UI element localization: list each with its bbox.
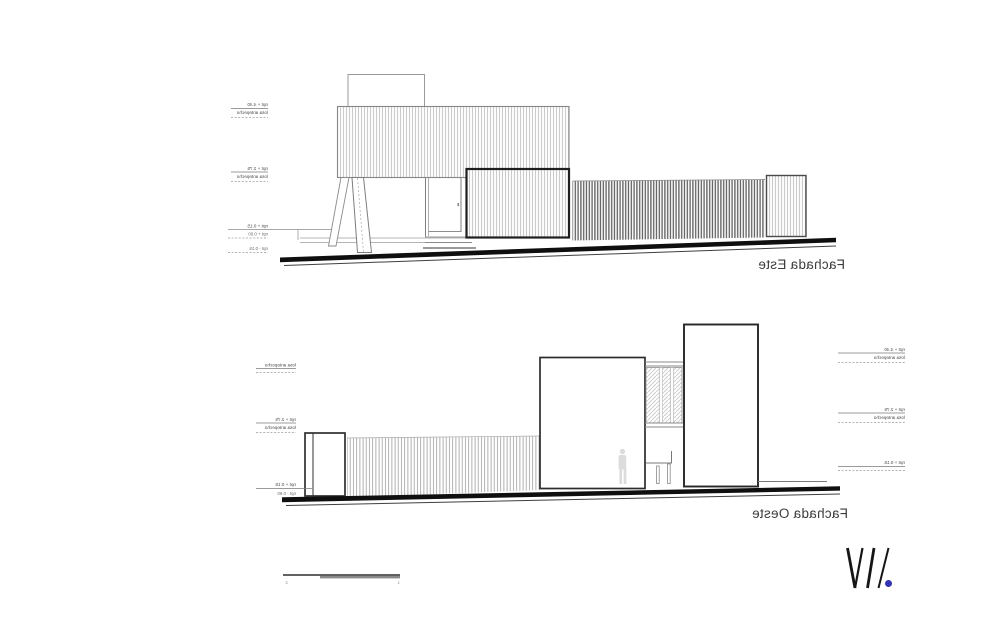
stair-post — [668, 464, 671, 484]
middle-bay — [645, 362, 684, 484]
upper-volume — [338, 107, 570, 178]
stair-post — [657, 466, 660, 484]
scale-bar: 2 1 — [283, 575, 400, 585]
scale-bar-left-number: 2 — [285, 580, 288, 585]
slanted-column — [352, 178, 372, 253]
level-annotation: losa antepecho — [236, 110, 268, 115]
elevation-linework: npt + 4.40 losa antepecho npt + 2.75 los… — [0, 0, 986, 637]
level-annotation: npt - 0.15 — [249, 246, 268, 251]
logo-dot — [885, 580, 892, 587]
stair-outline — [646, 451, 672, 463]
west-right-annotations: npt + 4.40 losa antepecho npt + 2.75 los… — [838, 347, 905, 471]
tower-volume — [684, 325, 758, 487]
front-panel — [467, 169, 570, 238]
level-annotation: npt + 0.15 — [275, 482, 296, 487]
west-left-annotations: losa antepecho npt + 2.75 losa antepecho… — [256, 363, 312, 497]
glazing-panels — [646, 368, 682, 424]
level-annotation: npt + 0.15 — [247, 224, 268, 229]
level-annotation: losa antepecho — [873, 415, 905, 420]
west-elevation-title: Fachada Oeste — [752, 506, 848, 521]
level-annotation: losa antepecho — [264, 425, 296, 430]
penthouse-outline — [348, 75, 425, 107]
scale-bar-segment — [320, 576, 400, 579]
main-volume — [540, 358, 645, 489]
door-handle — [458, 203, 460, 206]
level-annotation: losa antepecho — [236, 174, 268, 179]
east-elevation: npt + 4.40 losa antepecho npt + 2.75 los… — [228, 75, 845, 273]
level-annotation: npt - 0.90 — [277, 491, 296, 496]
level-annotation: npt + 0.15 — [884, 460, 905, 465]
scale-bar-right-number: 1 — [397, 580, 400, 585]
side-panel — [767, 176, 807, 237]
slanted-brace — [329, 178, 350, 247]
level-annotation: npt + 2.75 — [247, 166, 268, 171]
metal-fence — [573, 180, 766, 241]
level-annotation: npt + 4.40 — [884, 347, 905, 352]
east-elevation-title: Fachada Este — [758, 257, 845, 272]
level-annotation: npt + 2.75 — [884, 407, 905, 412]
logo-stroke — [848, 548, 856, 588]
gate — [305, 433, 345, 496]
level-annotation: npt + 0.00 — [248, 232, 268, 237]
level-annotation: losa antepecho — [264, 363, 296, 368]
entry-door — [426, 178, 462, 237]
level-annotation: npt + 2.75 — [275, 417, 296, 422]
west-elevation: losa antepecho npt + 2.75 losa antepecho… — [256, 325, 905, 522]
level-annotation: losa antepecho — [873, 355, 905, 360]
east-level-annotations: npt + 4.40 losa antepecho npt + 2.75 los… — [228, 102, 268, 253]
level-annotation: npt + 4.40 — [247, 102, 268, 107]
glazing-mullion — [671, 368, 674, 424]
light-fence — [347, 436, 540, 498]
drawing-sheet: npt + 4.40 losa antepecho npt + 2.75 los… — [0, 0, 986, 637]
studio-logo — [848, 548, 893, 588]
logo-stroke — [855, 548, 863, 588]
logo-stroke — [868, 548, 875, 588]
glazing-mullion — [660, 368, 663, 424]
